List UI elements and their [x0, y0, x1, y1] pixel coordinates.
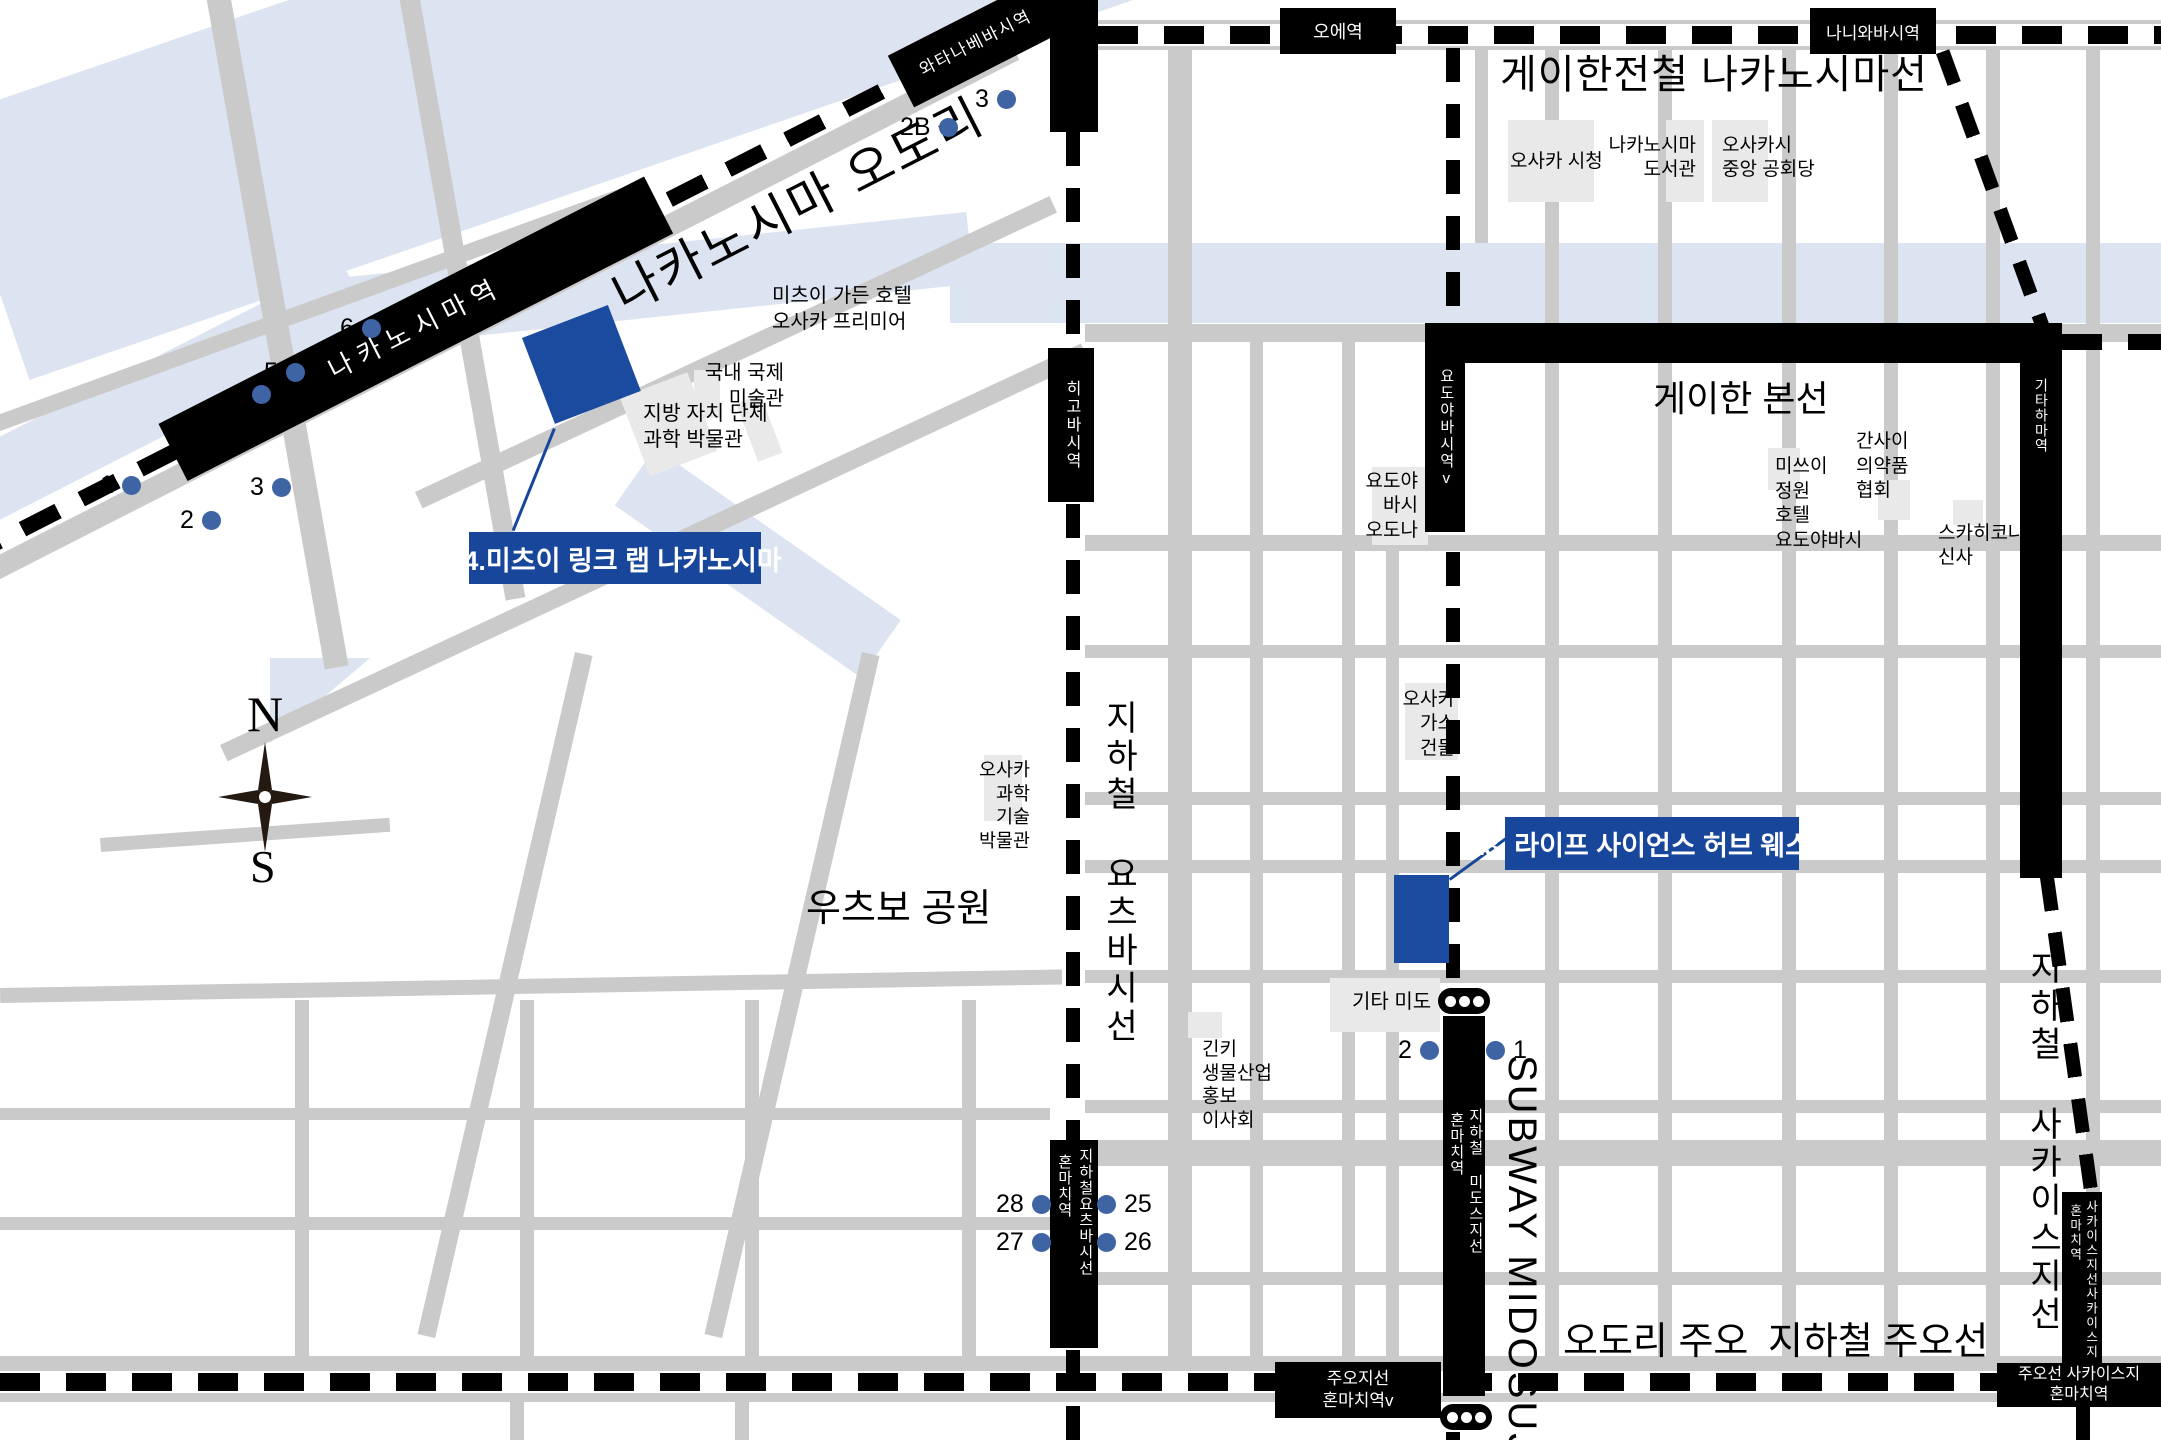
place-mitsui-garden-line1: 미츠이 가든 호텔: [772, 284, 912, 310]
station-higobashi: 히고바시역: [1048, 348, 1094, 502]
road-bl-v3: [745, 1000, 759, 1356]
place-mitsui-garden-hotel: 미츠이 가든 호텔 오사카 프리미어: [772, 284, 912, 335]
line-yotsubashi-title: 지하철 요츠바시선: [1096, 700, 1140, 1046]
road-r-v9: [1884, 48, 1898, 1373]
exit-1-left: 1: [100, 471, 141, 500]
compass-rose-icon: [218, 742, 312, 852]
rail-keihan-main-v: 기타하마역: [2020, 323, 2062, 878]
station-elbow-top: [1050, 0, 1098, 132]
place-kinki-line1: 긴키: [1202, 1038, 1272, 1062]
rail-yotsubashi-2: [1066, 504, 1080, 1140]
compass-north-label: N: [247, 682, 283, 746]
rail-yotsubashi-1: [1066, 132, 1080, 348]
place-public-hall-line2: 중앙 공회당: [1722, 158, 1815, 182]
place-local-science-line1: 지방 자치 단체: [643, 401, 768, 427]
road-r-v1: [1168, 48, 1192, 1373]
place-kansai-pharma: 간사이 의약품 협회: [1856, 430, 1908, 504]
exit-2-left-label: 2: [180, 506, 194, 535]
place-odona-line3: 오도나: [1360, 519, 1418, 543]
place-osaka-gas-line3: 건물: [1398, 737, 1455, 761]
station-higobashi-label: 히고바시역: [1059, 380, 1083, 470]
line-odori-chuo-title: 오도리 주오: [1563, 1318, 1748, 1367]
exit-2b-label: 2B: [900, 113, 931, 142]
exit-6-label: 6: [340, 314, 354, 343]
exit-3-left: 3: [250, 473, 291, 502]
road-bl-v4: [962, 1000, 976, 1356]
station-chuo-honmachi: 주오지선 혼마치역v: [1275, 1362, 1441, 1418]
station-naniwabashi-label: 나니와바시역: [1826, 19, 1920, 44]
line-keihan-main-title: 게이한 본선: [1653, 376, 1829, 422]
exit-27: 27: [996, 1228, 1051, 1257]
station-yotsubashi-line-label: 지하철요츠바시선: [1075, 1148, 1094, 1276]
station-midosuji-honmachi: 지하철 미도스지선 혼마치역: [1443, 1016, 1485, 1396]
transit-map: 나카노시마역 와타나베바시역 나카노시마 오도리 오에역 나니와바시역 히고바시…: [0, 0, 2161, 1440]
place-library-line2: 도서관: [1600, 158, 1696, 182]
place-kinki-line4: 이사회: [1202, 1109, 1272, 1133]
rail-keihan-nakanoshima: [1098, 26, 2161, 44]
place-sukunahikona-line1: 스카히코나: [1938, 522, 2025, 546]
place-sci-tech-line2: 과학: [962, 782, 1030, 806]
exit-dot-icon: [1486, 1041, 1505, 1060]
exit-dot-icon: [286, 363, 305, 382]
place-sci-tech-museum: 오사카 과학 기술 박물관: [962, 758, 1030, 853]
road-bl-v1: [295, 1000, 309, 1356]
subway-entrance-oval-bottom: [1440, 1404, 1492, 1430]
station-yodoyabashi-label: 요도야바시역v: [1436, 368, 1455, 489]
place-sukunahikona-line2: 신사: [1938, 546, 2025, 570]
highlight-building-13: [1394, 875, 1449, 963]
exit-1-left-label: 1: [100, 471, 114, 500]
station-sakaisuji-line-label: 사카이스지선사카이스지: [2082, 1200, 2098, 1360]
exit-2-midosuji: 2: [1398, 1036, 1439, 1065]
place-kinki-line3: 홍보: [1202, 1085, 1272, 1109]
exit-6: 6: [340, 314, 381, 343]
compass-south-label: S: [250, 838, 276, 897]
line-midosuji-en-title: SUBWAY MIDOSUJI LINE: [1496, 1055, 1547, 1440]
exit-25: 25: [1097, 1190, 1152, 1219]
subway-entrance-oval-top: [1438, 988, 1490, 1014]
exit-3-top: 3: [975, 85, 1016, 114]
highlight-label-14: 14.미츠이 링크 랩 나카노시마: [469, 532, 761, 584]
road-bl-v3s: [735, 1402, 749, 1440]
exit-dot-icon: [1420, 1041, 1439, 1060]
exit-2b: 2B: [900, 113, 958, 142]
place-odona: 요도야 바시 오도나: [1360, 470, 1418, 543]
exit-dot-icon: [252, 385, 271, 404]
place-kita-mido: 기타 미도: [1352, 990, 1431, 1016]
rail-chuo-line: [0, 1373, 2161, 1391]
line-keihan-nakanoshima-title: 게이한전철 나카노시마선: [1500, 50, 1928, 101]
road-bl-v2: [520, 1000, 534, 1356]
rail-yotsubashi-3: [1066, 1350, 1080, 1440]
exit-dot-icon: [939, 118, 958, 137]
place-sci-tech-line1: 오사카: [962, 758, 1030, 782]
exit-dot-icon: [1032, 1195, 1051, 1214]
station-yotsubashi-name-label: 혼마치역: [1054, 1154, 1073, 1218]
rail-keihan-east: [2062, 334, 2161, 350]
exit-dot-icon: [997, 90, 1016, 109]
station-sakaisuji-honmachi: 사카이스지선사카이스지 혼마치역: [2062, 1192, 2102, 1364]
station-chuo-sakaisuji-name: 혼마치역: [2050, 1385, 2109, 1405]
station-midosuji-name-label: 혼마치역: [1446, 1112, 1465, 1176]
exit-2-left: 2: [180, 506, 221, 535]
exit-dot-icon: [1097, 1233, 1116, 1252]
rail-sakaisuji-stub: [2076, 1407, 2090, 1440]
place-kansai-line3: 협회: [1856, 479, 1908, 504]
exit-dot-icon: [1032, 1233, 1051, 1252]
road-bl-v2s: [510, 1402, 524, 1440]
station-oebashi: 오에역: [1280, 8, 1396, 54]
place-osaka-gas-line1: 오사카: [1398, 688, 1455, 712]
place-osaka-gas-line2: 가스: [1398, 712, 1455, 736]
exit-dot-icon: [272, 478, 291, 497]
exit-dot-icon: [362, 319, 381, 338]
place-mitsui-hotel-line3: 호텔: [1775, 504, 1862, 529]
place-sci-tech-line3: 기술: [962, 805, 1030, 829]
place-osaka-gas: 오사카 가스 건물: [1398, 688, 1455, 761]
exit-dot-icon: [1097, 1195, 1116, 1214]
place-kinki-bio: 긴키 생물산업 홍보 이사회: [1202, 1038, 1272, 1132]
station-chuo-sakaisuji-line: 주오선 사카이스지: [2018, 1365, 2140, 1385]
rail-keihan-main-h: [1425, 323, 2062, 363]
place-kansai-line1: 간사이: [1856, 430, 1908, 455]
station-sakaisuji-name-label: 혼마치역: [2066, 1204, 2082, 1262]
station-chuo-sakaisuji-honmachi: 주오선 사카이스지 혼마치역: [1997, 1363, 2161, 1407]
road-park-south: [0, 969, 1062, 1003]
road-r-v10: [1986, 48, 2000, 1373]
place-local-science-museum: 지방 자치 단체 과학 박물관: [643, 401, 768, 453]
exit-1-midosuji: 1: [1486, 1036, 1527, 1065]
exit-1-midosuji-label: 1: [1513, 1036, 1527, 1065]
exit-3-left-label: 3: [250, 473, 264, 502]
line-sakaisuji-title: 지하철 사카이스지선: [2020, 950, 2064, 1334]
building-kinki-bio: [1188, 1012, 1222, 1038]
rail-midosuji-tail: [1446, 1432, 1460, 1440]
exit-26: 26: [1097, 1228, 1152, 1257]
station-yotsubashi-honmachi: 지하철요츠바시선 혼마치역: [1050, 1140, 1098, 1348]
road-r-v5: [1475, 48, 1488, 243]
exit-4-label: 4: [230, 380, 244, 409]
exit-3-top-label: 3: [975, 85, 989, 114]
exit-26-label: 26: [1124, 1228, 1152, 1257]
road-r-v2: [1250, 324, 1263, 1373]
place-library: 나카노시마 도서관: [1600, 134, 1696, 183]
place-mitsui-hotel-line1: 미쓰이: [1775, 455, 1862, 480]
exit-dot-icon: [122, 476, 141, 495]
place-sukunahikona: 스카히코나 신사: [1938, 522, 2025, 570]
exit-28: 28: [996, 1190, 1051, 1219]
place-mitsui-hotel-line4: 요도야바시: [1775, 529, 1862, 554]
place-mitsui-garden-line2: 오사카 프리미어: [772, 310, 912, 336]
place-public-hall: 오사카시 중앙 공회당: [1722, 134, 1815, 183]
road-park-v2: [705, 652, 880, 1338]
highlight-label-13: 13. 라이프 사이언스 허브 웨스트: [1505, 817, 1799, 870]
exit-25-label: 25: [1124, 1190, 1152, 1219]
highlight-label-14-text: 14.미츠이 링크 랩 나카노시마: [448, 539, 781, 578]
place-art-museum-line1: 국내 국제: [698, 361, 784, 387]
station-chuo-honmachi-name: 혼마치역v: [1322, 1390, 1393, 1412]
road-r-v7: [1658, 48, 1672, 1373]
place-sci-tech-line4: 박물관: [962, 829, 1030, 853]
place-kinki-line2: 생물산업: [1202, 1062, 1272, 1086]
station-oebashi-label: 오에역: [1313, 18, 1363, 44]
station-naniwabashi: 나니와바시역: [1810, 8, 1936, 54]
exit-27-label: 27: [996, 1228, 1024, 1257]
road-r-v8: [1782, 48, 1796, 1373]
exit-dot-icon: [202, 511, 221, 530]
line-chuo-title: 지하철 주오선: [1768, 1318, 1988, 1367]
station-kitahama-label: 기타하마역: [2032, 378, 2050, 453]
place-local-science-line2: 과학 박물관: [643, 427, 768, 453]
place-city-hall: 오사카 시청: [1510, 150, 1603, 174]
exit-4: 4: [230, 380, 271, 409]
station-midosuji-line-label: 지하철 미도스지선: [1465, 1108, 1484, 1254]
place-mitsui-hotel: 미쓰이 정원 호텔 요도야바시: [1775, 455, 1862, 554]
road-r-v3: [1342, 324, 1355, 1373]
place-utsubo-park: 우츠보 공원: [806, 885, 991, 934]
place-library-line1: 나카노시마: [1600, 134, 1696, 158]
station-chuo-honmachi-line: 주오지선: [1327, 1368, 1390, 1390]
place-public-hall-line1: 오사카시: [1722, 134, 1815, 158]
station-yodoyabashi: 요도야바시역v: [1425, 323, 1465, 532]
exit-28-label: 28: [996, 1190, 1024, 1219]
place-mitsui-hotel-line2: 정원: [1775, 480, 1862, 505]
place-odona-line2: 바시: [1360, 494, 1418, 518]
place-kansai-line2: 의약품: [1856, 455, 1908, 480]
place-odona-line1: 요도야: [1360, 470, 1418, 494]
highlight-label-13-text: 13. 라이프 사이언스 허브 웨스트: [1469, 824, 1835, 863]
exit-2-midosuji-label: 2: [1398, 1036, 1412, 1065]
